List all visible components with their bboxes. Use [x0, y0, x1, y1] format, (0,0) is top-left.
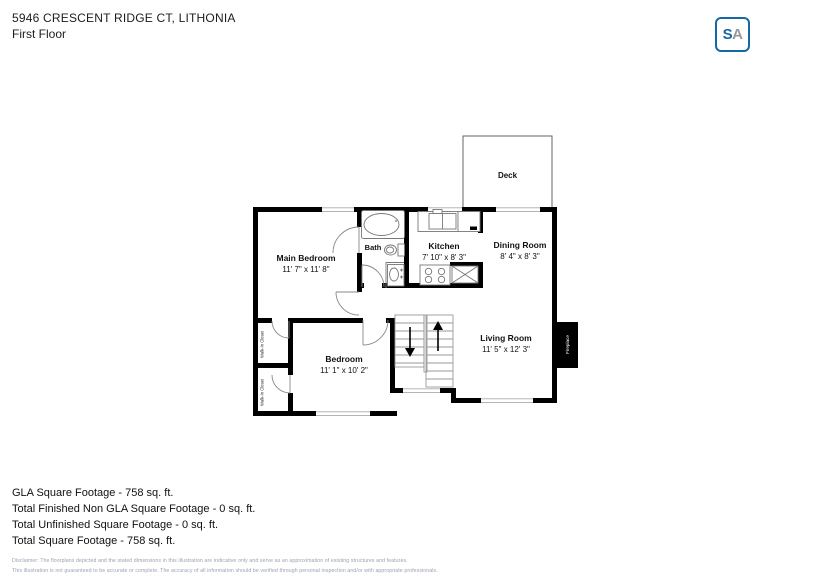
dining-room-dims: 8' 4" x 8' 3": [478, 252, 562, 262]
refrigerator-icon: [452, 266, 478, 283]
stairs-down-arrow-icon: [405, 327, 415, 357]
summary-unfinished: Total Unfinished Square Footage - 0 sq. …: [12, 519, 218, 531]
kitchen-dims: 7' 10" x 8' 3": [406, 253, 482, 263]
bedroom-label: Bedroom 11' 1" x 10' 2": [292, 354, 396, 376]
closet2-door: [272, 375, 290, 393]
closet1-door: [272, 321, 289, 338]
stairs-up-arrow-icon: [433, 321, 443, 351]
stairs: [395, 315, 453, 387]
walk-in-closet2-label: Walk-In Closet: [257, 373, 267, 411]
kitchen-name: Kitchen: [406, 241, 482, 251]
main-bedroom-door: [336, 292, 359, 315]
stove-icon: [420, 265, 450, 285]
summary-non-gla: Total Finished Non GLA Square Footage - …: [12, 503, 255, 515]
kitchen-label: Kitchen 7' 10" x 8' 3": [406, 241, 482, 263]
bedroom-name: Bedroom: [292, 354, 396, 364]
bathtub-icon: [362, 211, 405, 239]
main-bedroom-name: Main Bedroom: [250, 253, 362, 263]
floorplan-canvas: [0, 0, 831, 588]
living-room-label: Living Room 11' 5" x 12' 3": [454, 333, 558, 355]
main-bedroom-dims: 11' 7" x 11' 8": [250, 265, 362, 275]
dining-room-name: Dining Room: [478, 240, 562, 250]
walk-in-closet1-label: Walk-In Closet: [257, 325, 267, 363]
bedroom-dims: 11' 1" x 10' 2": [292, 366, 396, 376]
summary-gla: GLA Square Footage - 758 sq. ft.: [12, 487, 173, 499]
disclaimer-line1: Disclaimer: The floorplans depicted and …: [12, 558, 408, 564]
main-bedroom-label: Main Bedroom 11' 7" x 11' 8": [250, 253, 362, 275]
bath-sink-icon: [386, 263, 404, 289]
living-room-dims: 11' 5" x 12' 3": [454, 345, 558, 355]
bedroom-door: [363, 320, 388, 345]
bath-label: Bath: [355, 243, 391, 252]
summary-total: Total Square Footage - 758 sq. ft.: [12, 535, 175, 547]
dining-room-label: Dining Room 8' 4" x 8' 3": [478, 240, 562, 262]
living-room-name: Living Room: [454, 333, 558, 343]
deck-label: Deck: [463, 171, 552, 180]
disclaimer-line2: This illustration is not guaranteed to b…: [12, 568, 438, 574]
bath-hall-door: [362, 265, 384, 287]
windows: [316, 207, 540, 416]
fireplace-label: Fireplace: [557, 322, 578, 368]
floorplan-page: 5946 CRESCENT RIDGE CT, LITHONIA First F…: [0, 0, 831, 588]
walls: [253, 207, 557, 416]
